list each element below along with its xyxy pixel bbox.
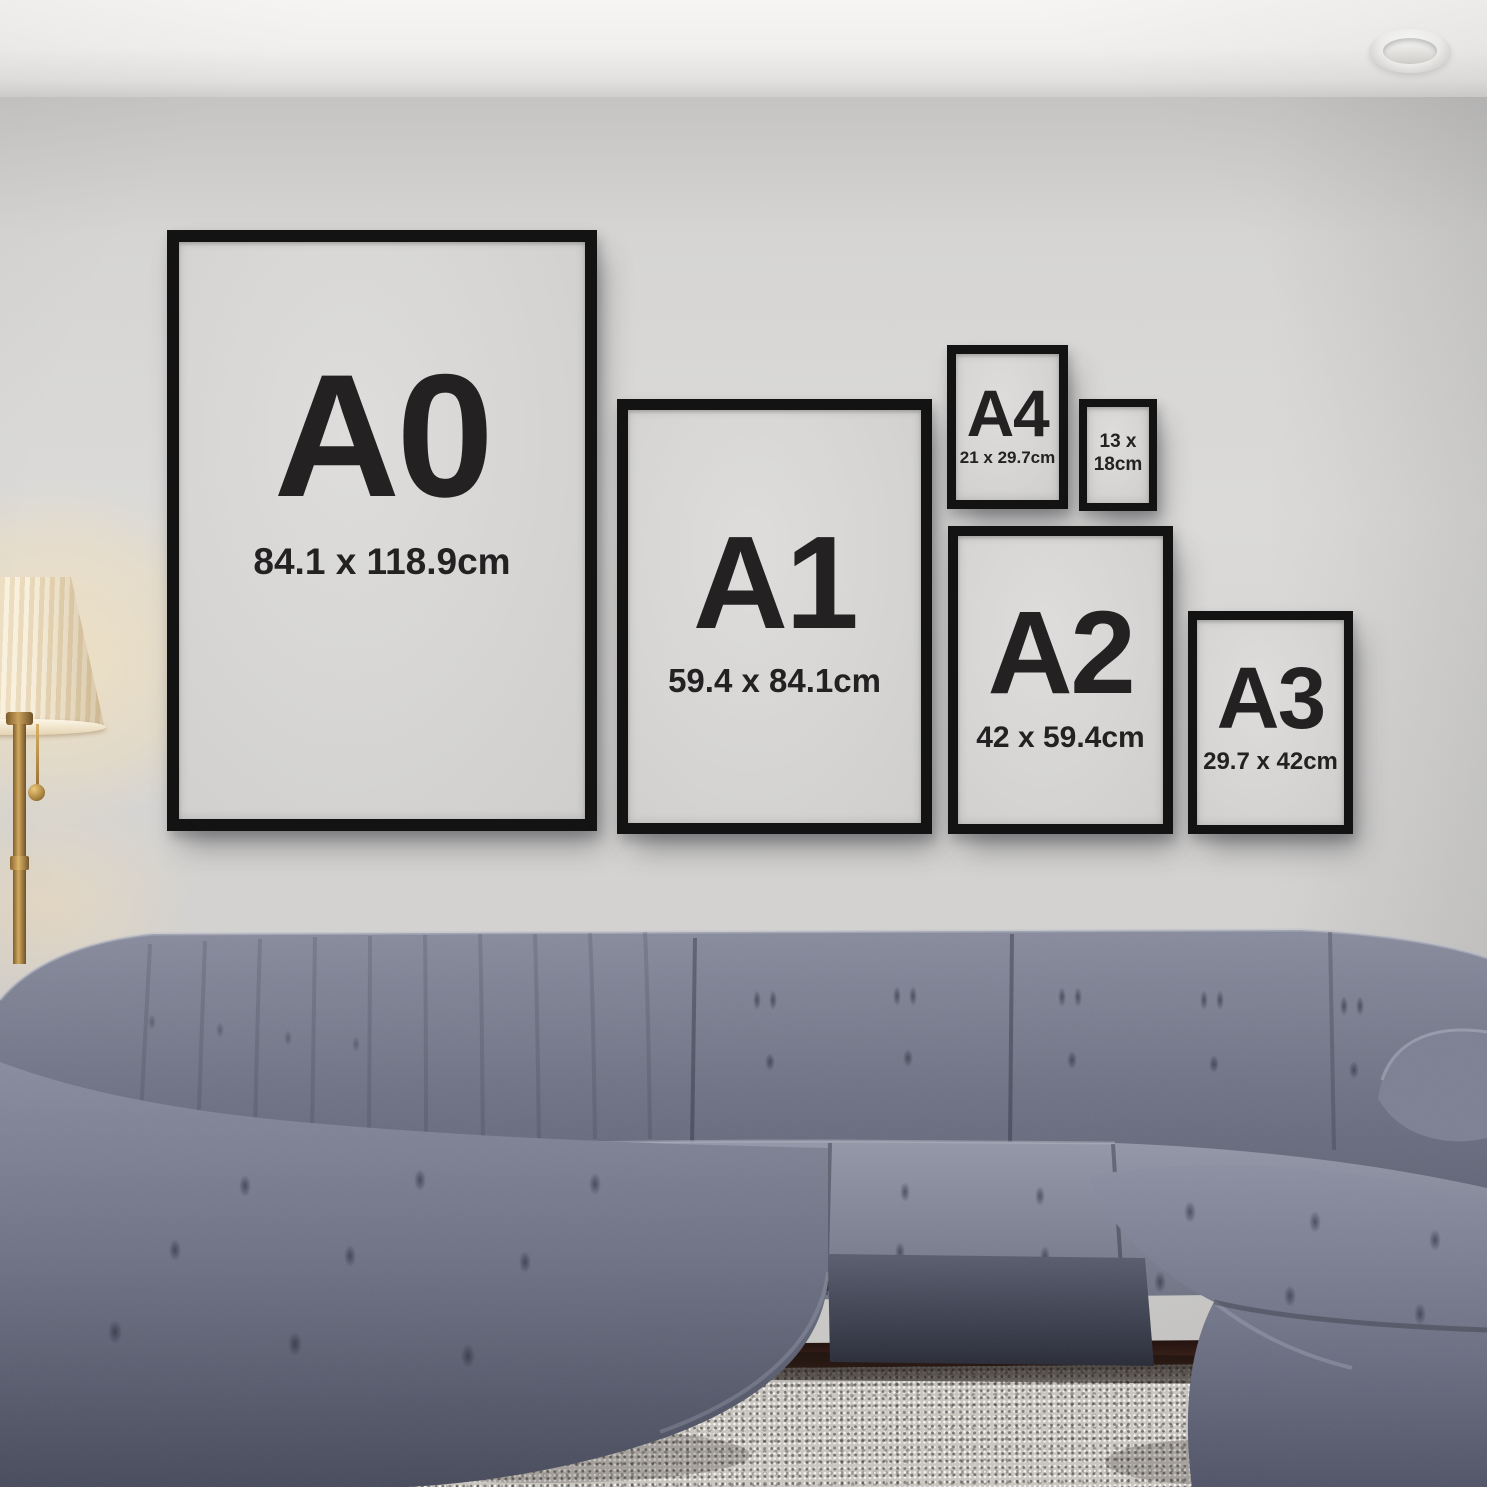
recessed-light-inner-ring [1383, 38, 1437, 64]
shag-rug [39, 1364, 1290, 1487]
frame-a4-paper: A4 21 x 29.7cm [956, 354, 1059, 500]
frame-a0-paper: A0 84.1 x 118.9cm [179, 242, 585, 819]
frame-a2-dimensions: 42 x 59.4cm [976, 722, 1144, 754]
floor-lamp-pole [13, 724, 26, 964]
floor-lamp-pull-chain-ball [28, 784, 45, 801]
frame-13x18: 13 x 18cm [1079, 399, 1157, 511]
frame-a1-label: A1 [693, 522, 856, 643]
frame-13x18-dimensions-line2: 18cm [1094, 454, 1143, 477]
frame-a4-label: A4 [967, 383, 1049, 444]
living-room-scene: A0 84.1 x 118.9cm A1 59.4 x 84.1cm A4 21… [0, 0, 1487, 1487]
frame-a1: A1 59.4 x 84.1cm [617, 399, 932, 834]
floor-lamp-pull-chain [36, 724, 39, 786]
frame-a0-label: A0 [274, 356, 491, 517]
frame-13x18-dimensions: 13 x 18cm [1094, 431, 1143, 477]
frame-a1-paper: A1 59.4 x 84.1cm [628, 410, 921, 823]
frame-a4: A4 21 x 29.7cm [947, 345, 1068, 509]
frame-a3-dimensions: 29.7 x 42cm [1203, 749, 1338, 774]
frame-a2-label: A2 [987, 599, 1133, 708]
recessed-ceiling-light [1369, 29, 1451, 73]
frame-a4-dimensions: 21 x 29.7cm [960, 449, 1055, 467]
frame-a2-paper: A2 42 x 59.4cm [958, 536, 1163, 824]
frame-a2: A2 42 x 59.4cm [948, 526, 1173, 834]
frame-a0-dimensions: 84.1 x 118.9cm [253, 543, 510, 582]
frame-a3-paper: A3 29.7 x 42cm [1197, 620, 1344, 825]
frame-a3-label: A3 [1217, 659, 1325, 739]
frame-a1-dimensions: 59.4 x 84.1cm [668, 664, 881, 699]
frame-13x18-dimensions-line1: 13 x [1094, 431, 1143, 454]
floor-lamp-collar [10, 856, 29, 870]
frame-a3: A3 29.7 x 42cm [1188, 611, 1353, 834]
ceiling [0, 0, 1487, 97]
frame-13x18-paper: 13 x 18cm [1087, 407, 1149, 503]
frame-a0: A0 84.1 x 118.9cm [167, 230, 597, 831]
